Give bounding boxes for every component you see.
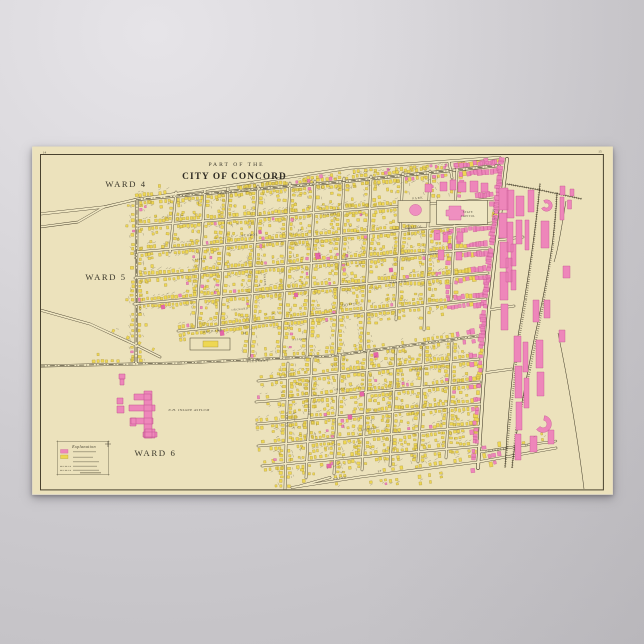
svg-text:ST: ST [243,332,248,335]
svg-text:WARD 4: WARD 4 [105,179,146,189]
svg-text:WARD 6: WARD 6 [134,448,176,458]
svg-text:PART OF THE: PART OF THE [208,162,264,168]
svg-text:STATE: STATE [463,211,473,214]
svg-text:14: 14 [43,151,47,155]
svg-text:ST: ST [525,444,530,448]
svg-text:SPRING: SPRING [285,412,290,428]
svg-text:N.H. INSANE ASYLUM: N.H. INSANE ASYLUM [167,408,209,412]
svg-text:CAPITOL: CAPITOL [461,215,475,218]
svg-text:STATE: STATE [138,302,142,315]
svg-text:SOUTH: SOUTH [307,404,310,416]
svg-text:ST: ST [298,229,302,232]
svg-text:CITY OF CONCORD: CITY OF CONCORD [182,172,287,182]
svg-text:WARD 5: WARD 5 [85,272,126,282]
svg-text:Explanation: Explanation [71,444,96,449]
svg-text:HIGH: HIGH [133,250,136,259]
svg-text:15: 15 [598,150,602,154]
